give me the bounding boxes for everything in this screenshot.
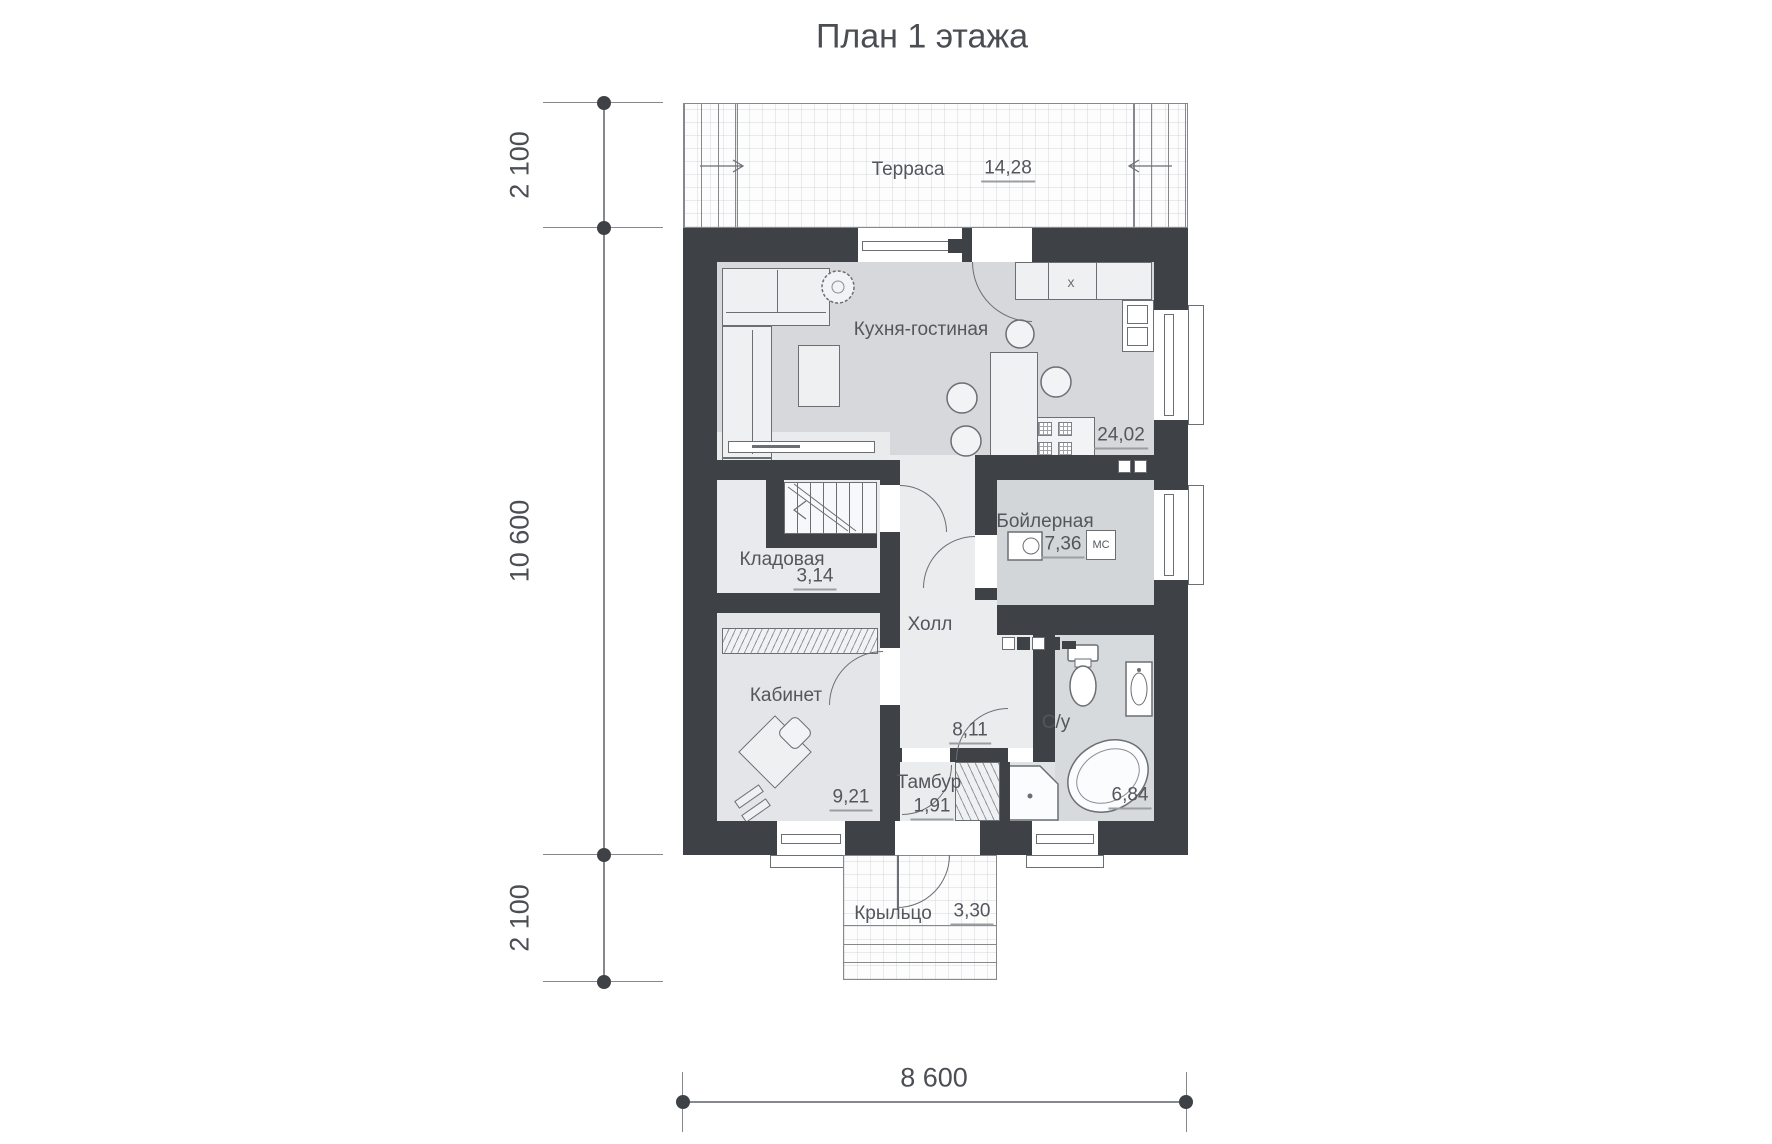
- room-label-vestibule: Тамбур: [897, 772, 962, 794]
- room-label-boiler: Бойлерная: [996, 511, 1093, 533]
- chair-icon: [1006, 320, 1034, 348]
- wall-segment: [683, 821, 777, 855]
- wall-segment: [1098, 821, 1188, 855]
- window-sill: [1026, 855, 1104, 868]
- boiler-door-opening: [975, 535, 997, 588]
- valve-mark: [1002, 637, 1015, 650]
- wall-segment: [1154, 420, 1188, 490]
- wall-segment: [1154, 580, 1188, 855]
- wall-segment: [880, 613, 900, 648]
- dimension-bottom: 8 600: [900, 1063, 968, 1094]
- floor-plan: План 1 этажа x: [0, 0, 1772, 1144]
- porch-step: [843, 962, 997, 963]
- office-door-opening: [880, 648, 900, 705]
- wall-segment: [880, 460, 900, 485]
- wall-segment: [880, 532, 900, 613]
- wall-segment: [880, 748, 902, 762]
- window-top-post: [948, 239, 962, 253]
- chair-icon: [1041, 367, 1071, 397]
- window-sill: [1188, 485, 1204, 585]
- dimension-dot: [597, 96, 611, 110]
- room-area-porch: 3,30: [951, 901, 994, 926]
- shower-icon: [1008, 766, 1058, 820]
- wall-segment: [683, 228, 717, 855]
- wall-segment: [997, 605, 1154, 635]
- storage-door-opening: [880, 485, 900, 532]
- wall-segment: [975, 588, 997, 600]
- window-glazing: [1036, 834, 1094, 844]
- room-label-kitchen-living: Кухня-гостиная: [854, 319, 988, 341]
- window-glazing: [1164, 314, 1174, 416]
- window-sill: [1188, 305, 1204, 425]
- valve-mark: [1134, 460, 1147, 473]
- terrace-arrow-left-icon: [700, 160, 743, 172]
- valve-mark: [1118, 460, 1131, 473]
- room-label-porch: Крыльцо: [854, 903, 932, 925]
- shower-icon: [1028, 794, 1033, 799]
- window-top-glazing: [862, 241, 958, 251]
- wall-segment: [1000, 762, 1010, 821]
- wall-segment: [717, 460, 890, 480]
- dimension-dot: [597, 221, 611, 235]
- porch-step: [843, 944, 997, 945]
- window-glazing: [1164, 494, 1174, 576]
- dimension-dot: [1179, 1095, 1193, 1109]
- wall-segment: [980, 821, 1032, 855]
- terrace-door-opening: [972, 228, 1032, 262]
- room-label-office: Кабинет: [750, 685, 822, 707]
- plant-icon: [822, 271, 854, 303]
- valve-block: [1017, 637, 1030, 650]
- window-glazing: [781, 834, 841, 844]
- room-area-terrace: 14,28: [981, 158, 1035, 183]
- dimension-left-top: 2 100: [505, 131, 536, 199]
- dimension-dot: [676, 1095, 690, 1109]
- vestibule-door-opening: [902, 748, 950, 762]
- room-area-kitchen-living: 24,02: [1094, 425, 1148, 450]
- dimension-left-middle: 10 600: [505, 500, 536, 583]
- terrace-arrow-right-icon: [1129, 160, 1172, 172]
- chair-icon: [947, 383, 977, 413]
- boiler-sink-icon: [1008, 532, 1042, 560]
- bathroom-door-opening: [1008, 748, 1033, 762]
- wall-segment: [880, 705, 900, 821]
- window-sill: [770, 855, 852, 868]
- wall-segment: [766, 534, 877, 548]
- wall-segment: [717, 593, 890, 613]
- front-door-opening: [895, 821, 980, 855]
- wall-segment: [1154, 228, 1188, 310]
- dimension-dot: [597, 848, 611, 862]
- toilet-icon: [1070, 666, 1096, 706]
- washbasin-icon: [1137, 668, 1141, 672]
- dimension-left-bottom: 2 100: [505, 884, 536, 952]
- room-area-storage: 3,14: [794, 566, 837, 591]
- room-area-boiler: 7,36: [1042, 534, 1085, 559]
- valve-block: [1047, 637, 1060, 650]
- stairs-arrow-icon: [794, 501, 806, 519]
- pipe-block: [1062, 641, 1076, 649]
- dimension-dot: [597, 975, 611, 989]
- valve-mark: [1032, 637, 1045, 650]
- front-door-leaf: [897, 855, 899, 910]
- wall-segment: [845, 821, 895, 855]
- bathtub-icon: [1055, 726, 1162, 827]
- wall-segment: [1033, 635, 1055, 762]
- room-area-vestibule: 1,91: [911, 796, 954, 821]
- room-label-hall: Холл: [908, 614, 953, 636]
- room-area-bathroom: 6,84: [1109, 785, 1152, 810]
- room-label-bathroom: С/у: [1042, 712, 1071, 734]
- room-label-terrace: Терраса: [872, 159, 945, 181]
- dimension-line-bottom: [683, 1101, 1187, 1103]
- room-area-hall: 8,11: [949, 720, 991, 745]
- wall-segment: [962, 228, 972, 262]
- room-area-office: 9,21: [830, 787, 873, 812]
- chair-icon: [951, 426, 981, 456]
